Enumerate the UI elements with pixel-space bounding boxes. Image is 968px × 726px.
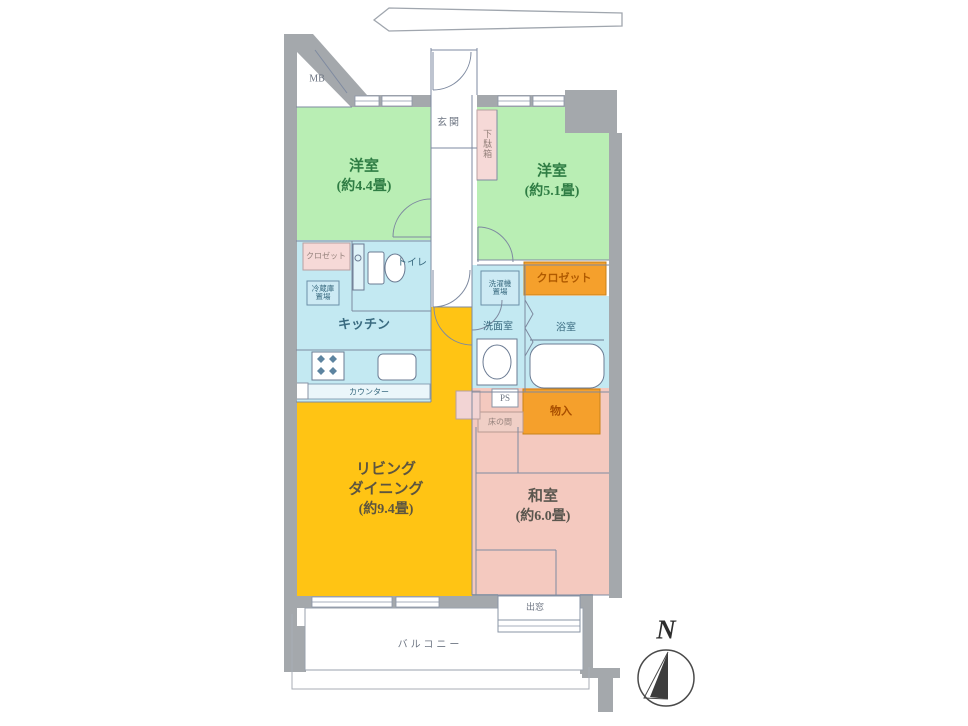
north-label: N (656, 614, 676, 645)
wall-foot-left (284, 626, 306, 672)
storage-label: 物入 (550, 406, 572, 419)
sink-icon (378, 354, 416, 380)
bay-window-label: 出窓 (526, 602, 544, 612)
approach-arrow (374, 8, 622, 31)
toilet-shelf (353, 244, 364, 290)
western2-area: (約5.1畳) (525, 184, 580, 200)
compass (638, 650, 694, 706)
wall-bottom-bar (582, 668, 620, 678)
fridge-line2: 置場 (312, 293, 335, 301)
bathtub-icon (530, 344, 604, 388)
western1-area: (約4.4畳) (337, 179, 392, 195)
western1-name: 洋室 (349, 158, 379, 175)
floorplan-canvas: MB 玄関 下駄箱 洋室 (約4.4畳) 洋室 (約5.1畳) トイレ クロゼッ… (0, 0, 968, 726)
stove-icon (312, 352, 344, 380)
washbasin-bowl (483, 345, 511, 379)
shoe-cabinet-label: 下駄箱 (482, 129, 492, 159)
tokonoma-label: 床の間 (488, 417, 512, 426)
japanese-name: 和室 (528, 488, 558, 505)
side-box (296, 383, 308, 399)
mb-label: MB (309, 73, 325, 85)
washer-line2: 置場 (489, 288, 512, 296)
bathroom-label: 浴室 (556, 322, 576, 334)
kitchen-label: キッチン (338, 318, 390, 333)
wall-right (609, 133, 622, 598)
living-area: (約9.4畳) (359, 502, 414, 518)
small-closet-label: クロゼット (306, 251, 346, 260)
entrance-door-arc (433, 52, 471, 90)
washroom-label: 洗面室 (483, 321, 513, 333)
entrance-label: 玄関 (437, 117, 461, 129)
floorplan-drawing (0, 0, 968, 726)
living-name2: ダイニング (348, 481, 423, 498)
compass-needle-dark (650, 652, 668, 699)
counter-label: カウンター (349, 387, 389, 396)
toilet-label: トイレ (397, 257, 427, 269)
japanese-area: (約6.0畳) (516, 509, 571, 525)
wall-foot-right (598, 678, 613, 712)
wall-left (284, 34, 297, 632)
toilet-tank (368, 252, 384, 284)
western2-name: 洋室 (537, 163, 567, 180)
balcony-label: バルコニー (398, 639, 463, 651)
closet-label: クロゼット (537, 273, 592, 286)
ps-label: PS (500, 393, 510, 403)
wall-corner-block (565, 90, 617, 133)
living-name1: リビング (356, 461, 416, 478)
fridge-space-label: 冷蔵庫 置場 (312, 285, 335, 302)
toilet-shelf-basin (355, 255, 361, 261)
washer-space-label: 洗濯機 置場 (489, 280, 512, 297)
toilet-door-arc (433, 270, 470, 307)
step-box (456, 391, 480, 419)
